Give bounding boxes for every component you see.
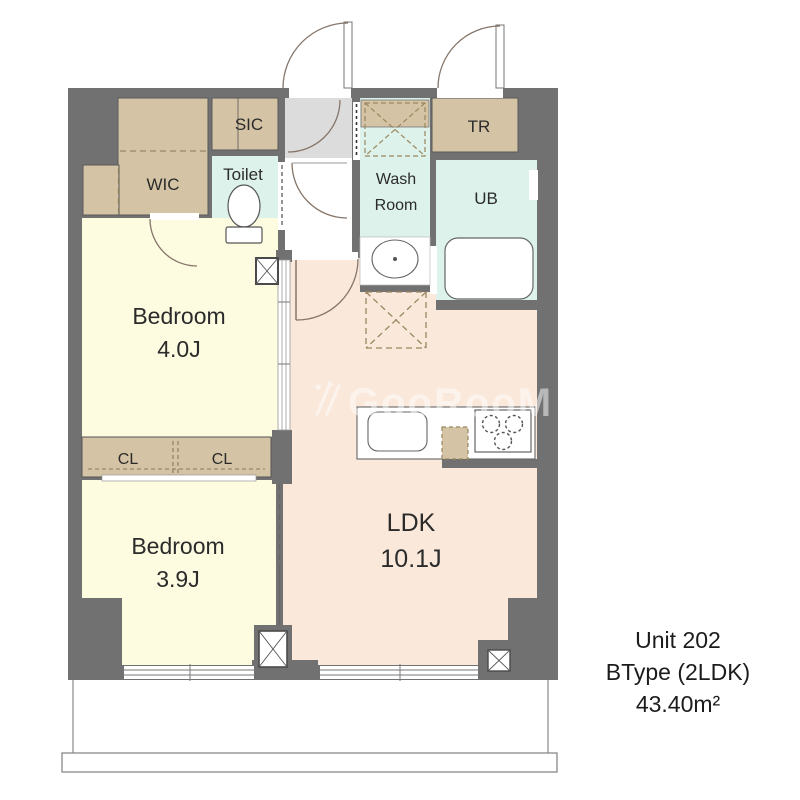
shaft-middle	[259, 631, 287, 667]
basin-drain	[393, 257, 397, 261]
washer-counter	[361, 100, 429, 127]
bedroom2-window	[124, 664, 254, 681]
bedroom1-label: Bedroom	[132, 303, 225, 329]
bedroom2-window-glass	[124, 666, 254, 679]
watermark-icon-dot1	[315, 384, 320, 389]
ldk-floor-f	[290, 640, 478, 665]
bedroom1-size: 4.0J	[157, 336, 200, 362]
ub-label: UB	[474, 189, 498, 208]
wic-floor-extension	[83, 165, 119, 215]
washroom-label-line2: Room	[375, 197, 418, 214]
bedroom2-wall-block	[82, 598, 122, 665]
watermark: GooRooM	[315, 381, 553, 425]
shaft-upper	[256, 258, 278, 284]
front-door-arc	[283, 23, 348, 88]
toilet-label: Toilet	[223, 165, 263, 184]
floor-plan-drawing: GooRooM WIC SIC Toilet Wash Room TR UB B…	[0, 0, 800, 800]
bedroom2-size: 3.9J	[156, 566, 199, 592]
tr-door-leaf	[496, 25, 504, 88]
tr-label: TR	[468, 117, 491, 136]
kitchen-half-wall	[442, 459, 538, 468]
watermark-text: GooRooM	[348, 381, 553, 425]
floor-plan-page: GooRooM WIC SIC Toilet Wash Room TR UB B…	[0, 0, 800, 800]
closet-row	[82, 437, 271, 477]
kitchen-appliance-space	[442, 427, 468, 459]
toilet-bowl	[228, 185, 260, 227]
ldk-floor-b	[360, 292, 436, 313]
ldk-window	[320, 664, 478, 681]
unit-number: Unit 202	[635, 627, 721, 653]
wic-floor	[118, 98, 208, 215]
toilet-tank	[226, 227, 262, 243]
cl-right-label: CL	[212, 451, 233, 468]
bedroom1-door-opening	[150, 213, 199, 220]
balcony	[62, 680, 557, 772]
ldk-size: 10.1J	[380, 545, 441, 573]
ldk-label: LDK	[387, 509, 436, 537]
bedroom1-ldk-partition	[278, 260, 290, 430]
unit-area: 43.40m²	[636, 691, 721, 717]
front-door-leaf	[344, 22, 352, 88]
sic-label: SIC	[235, 115, 263, 134]
tr-door-arc	[438, 26, 500, 88]
wic-label: WIC	[146, 175, 179, 194]
shaft-corner	[488, 650, 510, 671]
bedroom2-label: Bedroom	[131, 533, 224, 559]
unit-info: Unit 202 BType (2LDK) 43.40m²	[606, 627, 750, 717]
balcony-railing	[62, 753, 557, 772]
washroom-label-line1: Wash	[376, 171, 416, 188]
unit-type: BType (2LDK)	[606, 659, 750, 685]
ldk-floor-a	[290, 258, 360, 313]
closet-sliding-track	[102, 475, 256, 481]
ub-door-opening	[430, 246, 437, 294]
ldk-window-glass	[320, 666, 478, 679]
cl-left-label: CL	[118, 451, 139, 468]
bathtub	[445, 238, 533, 299]
entrance-floor	[285, 98, 352, 158]
ldk-door-opening	[292, 252, 358, 260]
tr-door-opening	[437, 88, 503, 98]
front-door-opening	[289, 88, 351, 98]
hallway-floor	[285, 158, 352, 252]
ldk-floor-e	[290, 598, 508, 640]
partition-stub-lower	[272, 430, 292, 484]
watermark-icon-dot2	[327, 381, 332, 386]
ub-side-slot	[529, 170, 538, 200]
